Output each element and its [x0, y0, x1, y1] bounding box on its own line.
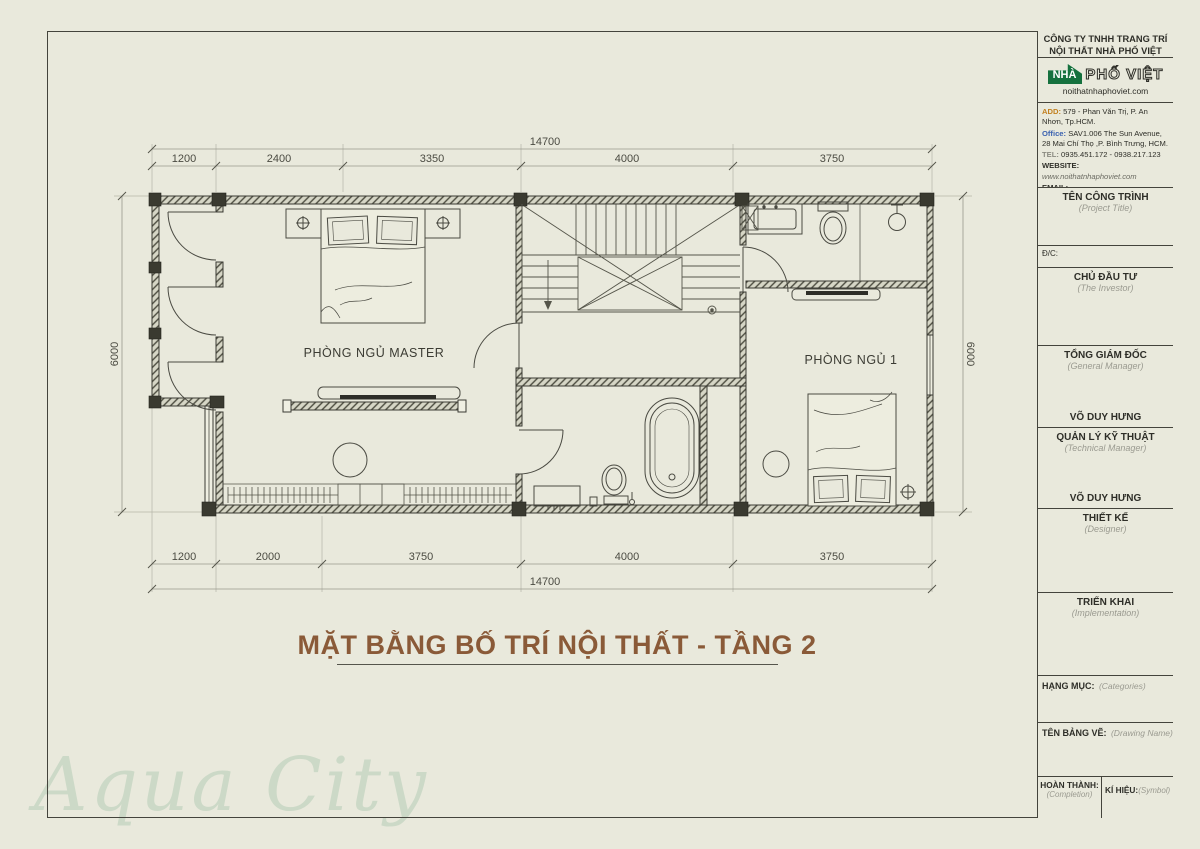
contact-tel: TEL: 0935.451.172 - 0938.217.123	[1042, 150, 1169, 160]
bedroom1-lamp	[900, 484, 916, 500]
dim-bot-5: 3750	[820, 551, 844, 563]
master-bed	[286, 209, 460, 323]
drawing-title-underline	[337, 664, 778, 665]
dim-left-height: 6000	[109, 342, 121, 366]
bathroom-bottom	[534, 398, 699, 510]
logo-house-icon: NHÀ	[1048, 64, 1083, 84]
dim-top-total: 14700	[530, 136, 561, 148]
dimension-ticks	[118, 145, 967, 593]
master-stool	[333, 443, 367, 477]
dim-right-height: 6000	[964, 342, 976, 366]
dim-top-1: 1200	[172, 153, 196, 165]
master-tv-console	[318, 387, 460, 400]
bathroom-top	[748, 202, 906, 281]
general-manager-name: VÕ DUY HƯNG	[1038, 412, 1173, 423]
dim-top-5: 3750	[820, 153, 844, 165]
floor-plan-svg: 14700 1200 2400 3350 4000 3750 1200 2000…	[0, 0, 1200, 849]
bedroom1-bed	[808, 392, 896, 506]
bedroom1-stool	[763, 451, 789, 477]
contact-address: ADD: 579 - Phan Văn Trị, P. An Nhơn, Tp.…	[1042, 107, 1169, 128]
section-address: Đ/C:	[1038, 246, 1173, 268]
company-logo: NHÀ PHỐ VIỆT noithatnhaphoviet.com	[1038, 58, 1173, 103]
bedroom1-tv-console	[792, 289, 880, 300]
dim-top-4: 4000	[615, 153, 639, 165]
dim-bot-4: 4000	[615, 551, 639, 563]
contact-website: WEBSITE: www.noithatnhaphoviet.com	[1042, 161, 1169, 182]
section-categories: HẠNG MỤC: (Categories)	[1038, 676, 1173, 723]
drawing-sheet: Aqua City	[0, 0, 1200, 849]
symbol-cell: KÍ HIỆU:(Symbol)	[1102, 777, 1173, 818]
drawing-title: MẶT BẰNG BỐ TRÍ NỘI THẤT - TẦNG 2	[257, 630, 857, 661]
section-investor: CHỦ ĐẦU TƯ (The Investor)	[1038, 268, 1173, 346]
company-name: CÔNG TY TNHH TRANG TRÍ NỘI THẤT NHÀ PHỐ …	[1038, 31, 1173, 58]
wardrobe	[223, 484, 516, 505]
title-block: CÔNG TY TNHH TRANG TRÍ NỘI THẤT NHÀ PHỐ …	[1037, 31, 1173, 818]
logo-brand-text: PHỐ VIỆT	[1085, 66, 1163, 83]
dim-bottom-total: 14700	[530, 576, 561, 588]
dim-bot-2: 2000	[256, 551, 280, 563]
room-label-bedroom1: PHÒNG NGỦ 1	[804, 352, 897, 367]
dim-top-3: 3350	[420, 153, 444, 165]
section-project-title: TÊN CÔNG TRÌNH (Project Title)	[1038, 188, 1173, 246]
section-drawing-name: TÊN BẢNG VẼ: (Drawing Name)	[1038, 723, 1173, 777]
room-label-master: PHÒNG NGỦ MASTER	[304, 345, 445, 360]
section-general-manager: TỔNG GIÁM ĐỐC (General Manager) VÕ DUY H…	[1038, 346, 1173, 428]
technical-manager-name: VÕ DUY HƯNG	[1038, 493, 1173, 504]
logo-website: noithatnhaphoviet.com	[1063, 86, 1149, 96]
contact-office: Office: SAV1.006 The Sun Avenue, 28 Mai …	[1042, 129, 1169, 150]
section-designer: THIẾT KẾ (Designer)	[1038, 509, 1173, 593]
doors	[168, 212, 788, 474]
company-line1: CÔNG TY TNHH TRANG TRÍ	[1038, 33, 1173, 45]
completion-cell: HOÀN THÀNH: (Completion)	[1038, 777, 1102, 818]
dim-bot-3: 3750	[409, 551, 433, 563]
company-line2: NỘI THẤT NHÀ PHỐ VIỆT	[1038, 45, 1173, 57]
section-completion-symbol: HOÀN THÀNH: (Completion) KÍ HIỆU:(Symbol…	[1038, 777, 1173, 818]
dim-top-2: 2400	[267, 153, 291, 165]
stairs	[522, 204, 758, 314]
room-labels: PHÒNG NGỦ MASTER PHÒNG NGỦ 1	[304, 345, 898, 367]
section-implementation: TRIỂN KHAI (Implementation)	[1038, 593, 1173, 676]
dimension-lines	[122, 149, 963, 589]
dim-bot-1: 1200	[172, 551, 196, 563]
section-technical-manager: QUẢN LÝ KỸ THUẬT (Technical Manager) VÕ …	[1038, 428, 1173, 509]
contact-info: ADD: 579 - Phan Văn Trị, P. An Nhơn, Tp.…	[1038, 103, 1173, 188]
